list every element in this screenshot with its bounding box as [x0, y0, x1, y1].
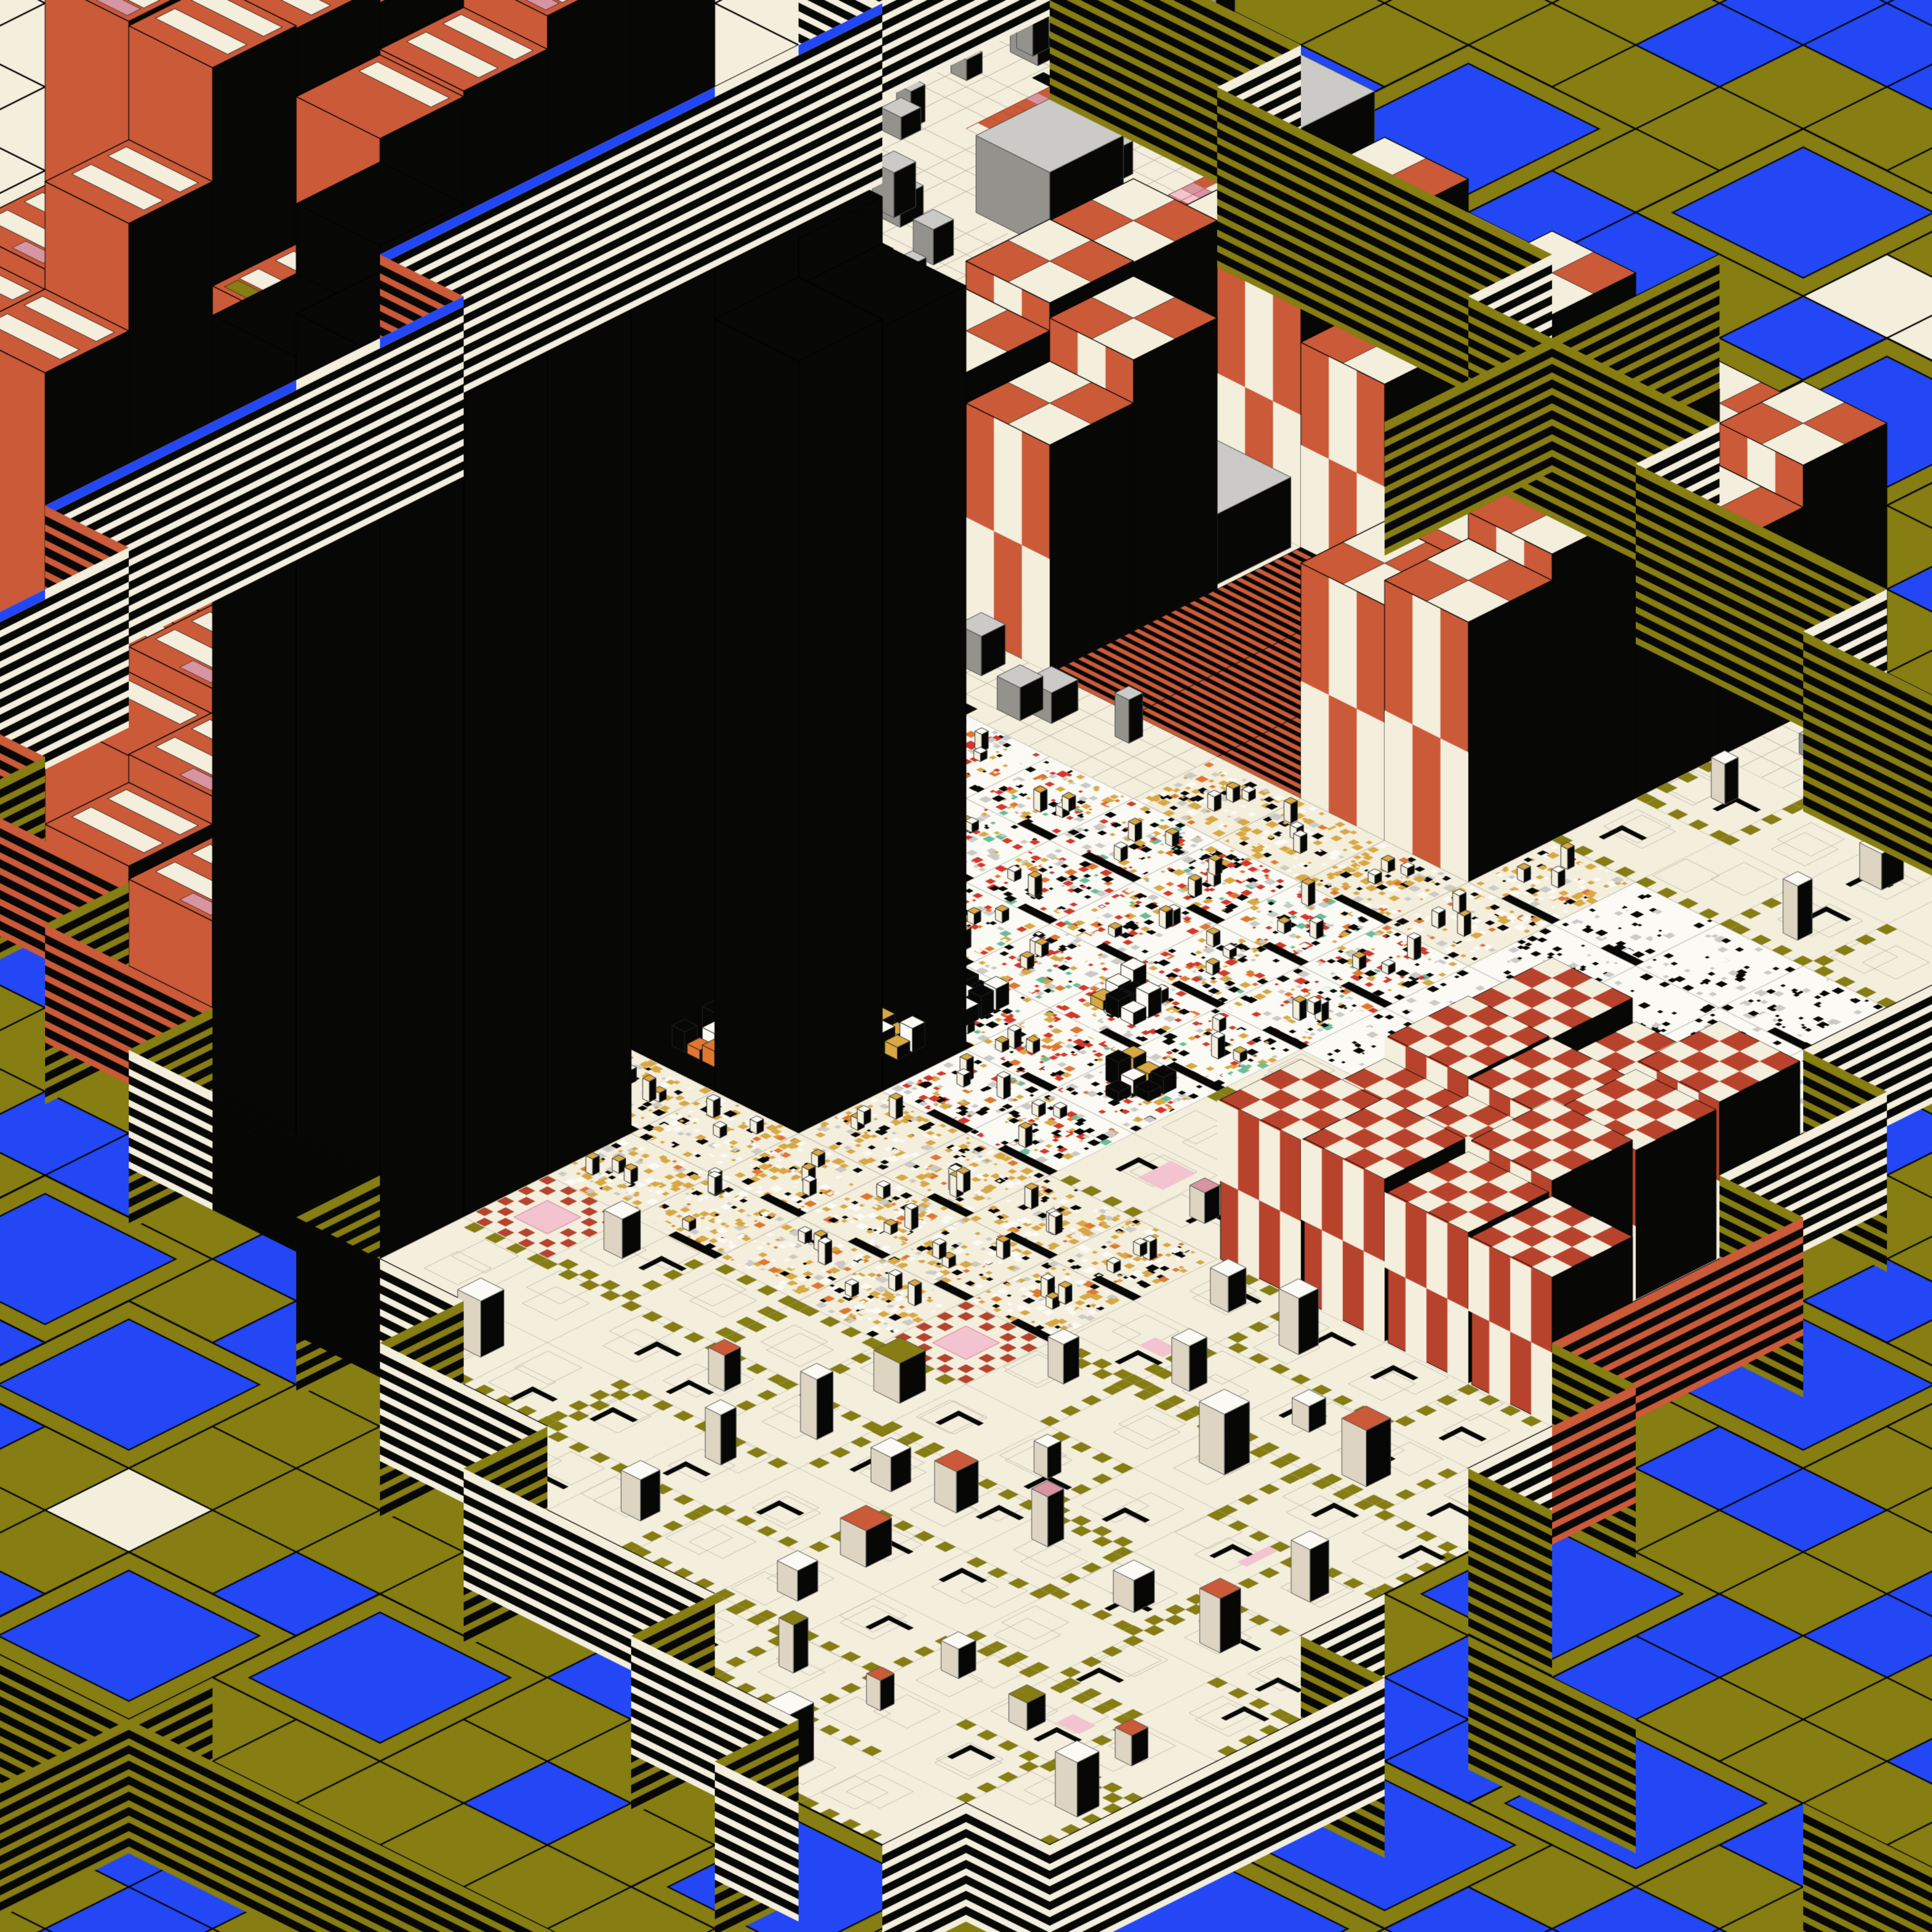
generative-artwork [0, 0, 1932, 1932]
isometric-city-canvas [0, 0, 1932, 1932]
